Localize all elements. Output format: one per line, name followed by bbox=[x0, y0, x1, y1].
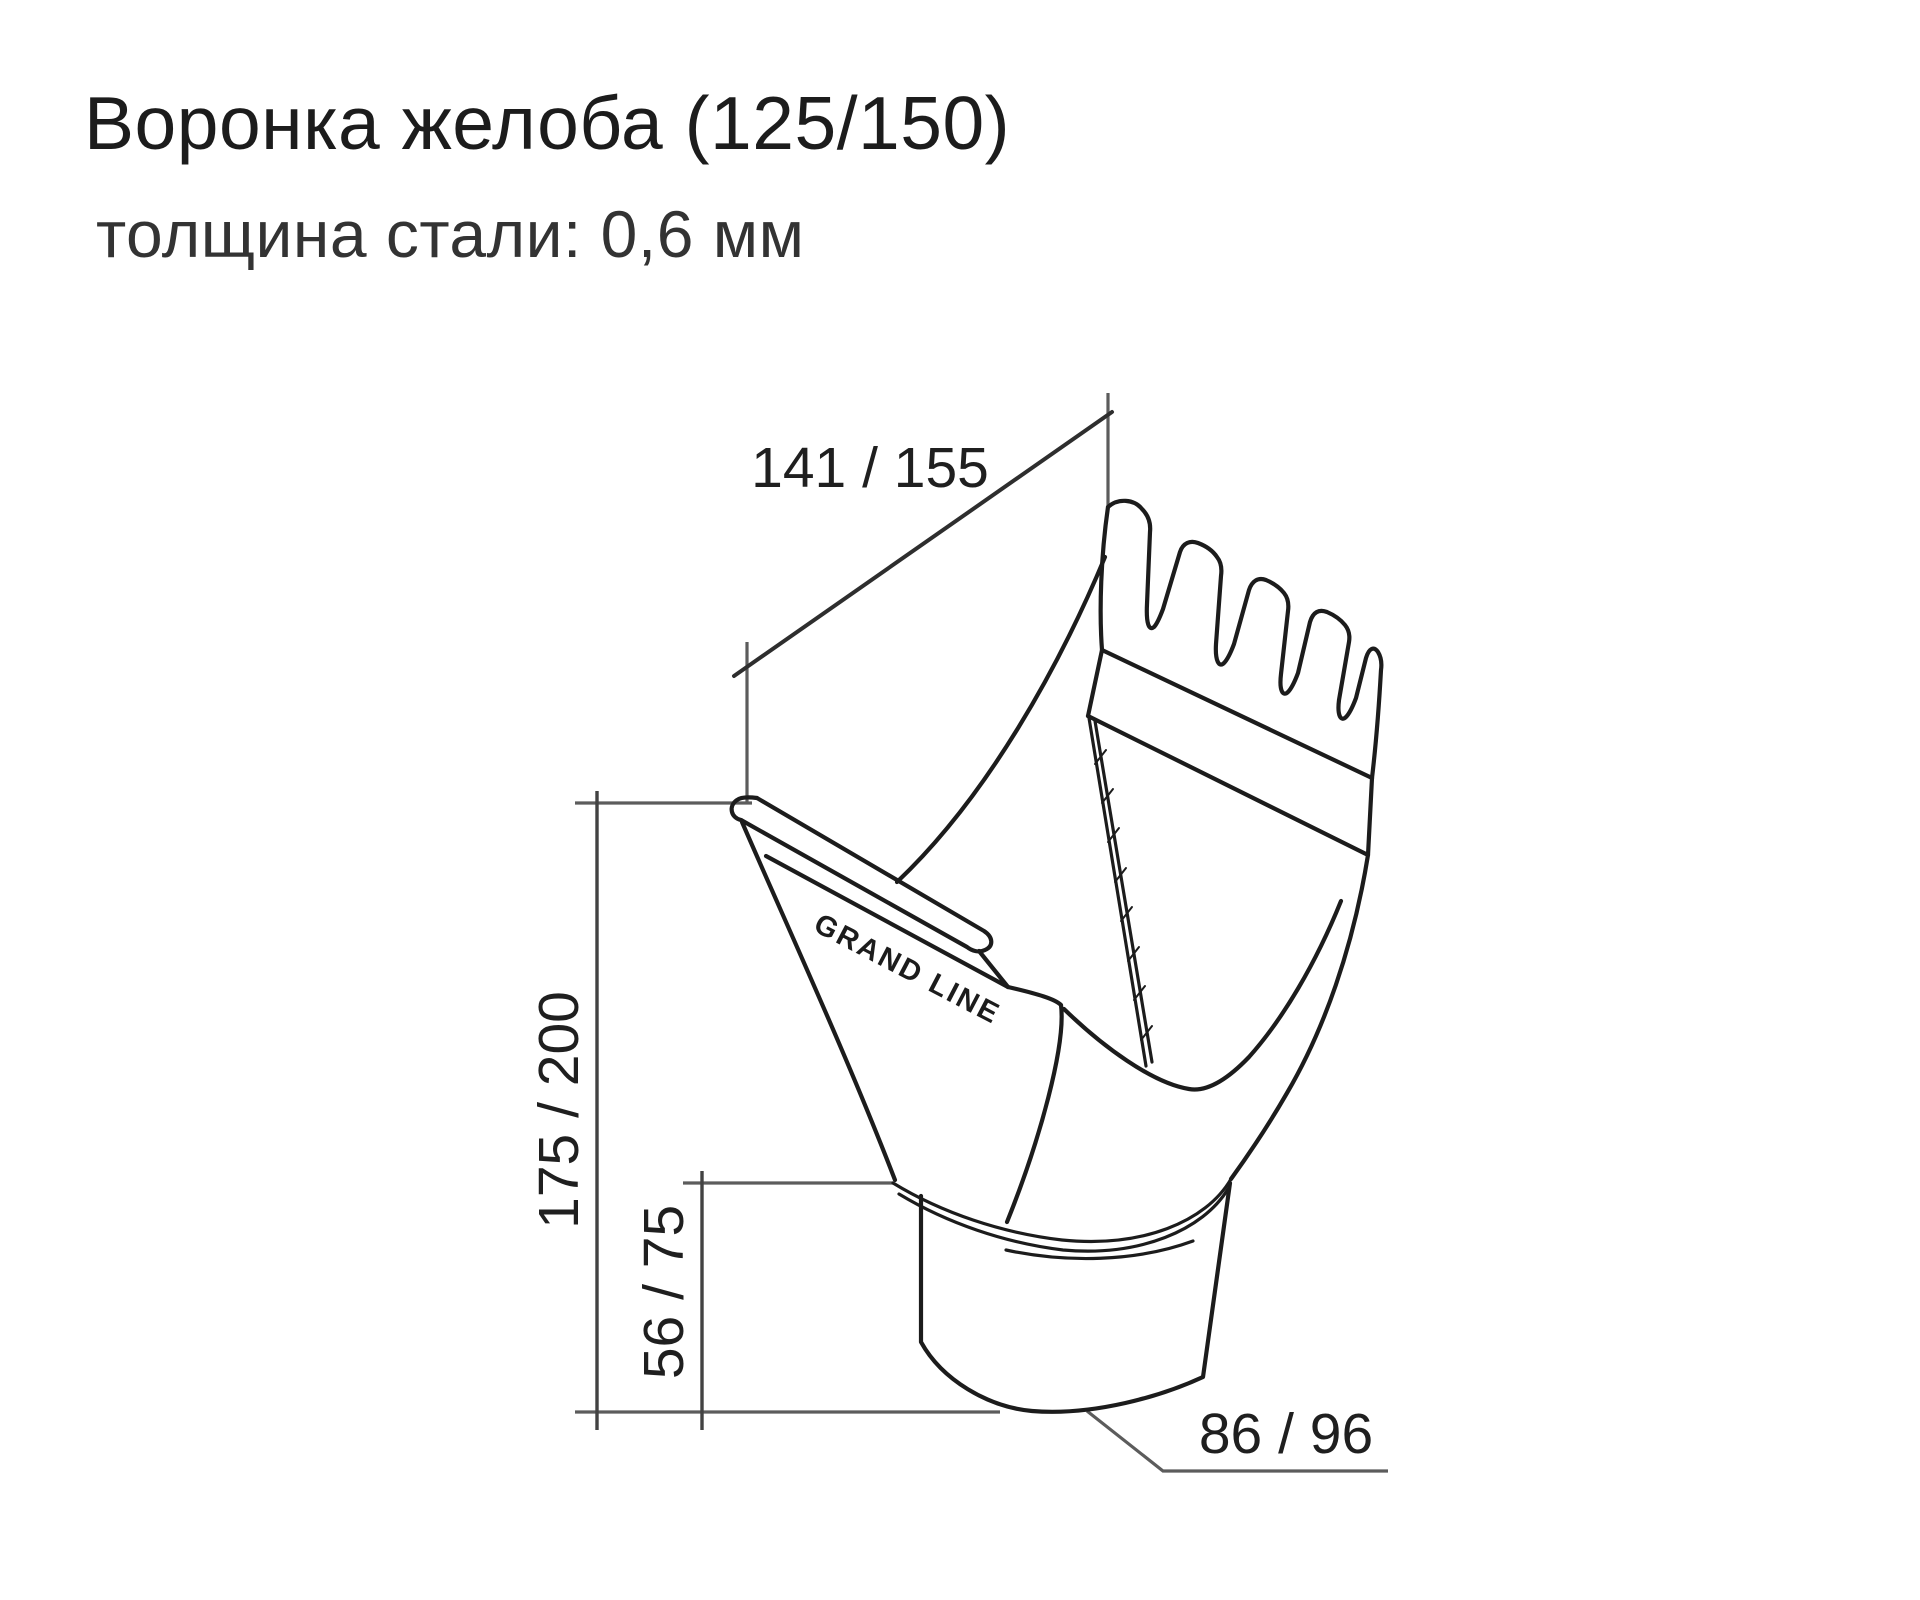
outlet-diameter-label: 86 / 96 bbox=[1199, 1402, 1373, 1466]
side-seam-left-line bbox=[1089, 718, 1146, 1066]
total-height-label: 175 / 200 bbox=[527, 991, 591, 1229]
plate-left-edge bbox=[1088, 507, 1108, 716]
fold-band-top-edge bbox=[1102, 650, 1372, 778]
side-seam-right-line bbox=[1095, 721, 1152, 1062]
extension-lines bbox=[575, 393, 1388, 1471]
funnel-body bbox=[732, 501, 1382, 1412]
dimension-labels: 141 / 155 175 / 200 56 / 75 86 / 96 GRAN… bbox=[527, 436, 1373, 1466]
front-face-right-edge bbox=[1007, 987, 1062, 1222]
gutter-shoulder-curve bbox=[897, 557, 1105, 882]
fold-band-bottom-edge bbox=[1088, 716, 1368, 855]
throat-inner-edge bbox=[1064, 901, 1341, 1089]
rim-bar-end-cap bbox=[732, 797, 757, 820]
spout-height-label: 56 / 75 bbox=[632, 1205, 696, 1379]
neck-crimp-lower bbox=[899, 1189, 1228, 1251]
front-face-left-edge bbox=[742, 822, 895, 1180]
rim-bar-corner-segment bbox=[979, 951, 1008, 987]
gutter-width-label: 141 / 155 bbox=[751, 436, 989, 500]
gutter-funnel-diagram: 141 / 155 175 / 200 56 / 75 86 / 96 GRAN… bbox=[0, 0, 1920, 1600]
serrated-plate-outline bbox=[1108, 501, 1381, 778]
technical-drawing-page: Воронка желоба (125/150) толщина стали: … bbox=[0, 0, 1920, 1600]
